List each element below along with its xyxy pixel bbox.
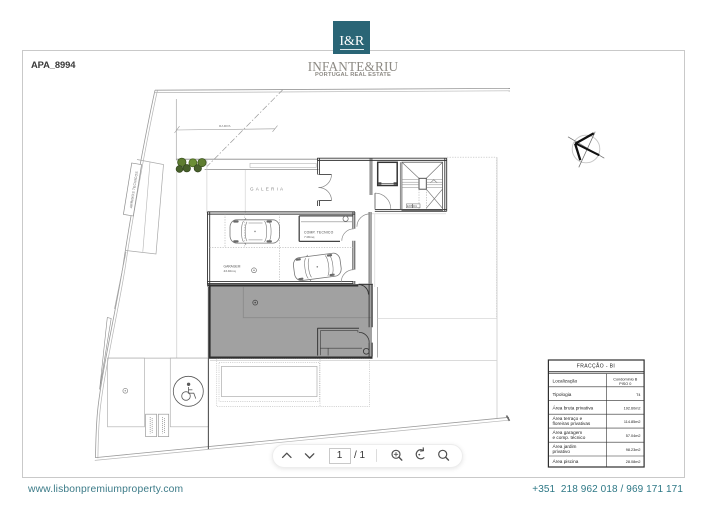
svg-text:Área piscina: Área piscina <box>553 458 579 464</box>
svg-text:RAMPA: RAMPA <box>219 124 232 128</box>
svg-text:114.85m2: 114.85m2 <box>624 420 641 424</box>
svg-text:ENT.001: ENT.001 <box>407 204 418 208</box>
svg-text:Tipologia: Tipologia <box>553 392 572 397</box>
svg-text:98.23m2: 98.23m2 <box>626 448 641 452</box>
svg-text:e comp. técnico: e comp. técnico <box>553 435 586 440</box>
svg-text:GALERIA: GALERIA <box>250 187 285 192</box>
svg-text:192.60m2: 192.60m2 <box>624 406 641 410</box>
svg-text:28.08m2: 28.08m2 <box>626 460 641 464</box>
svg-text:COMP. TECNICO: COMP. TECNICO <box>304 230 334 234</box>
svg-text:Localização: Localização <box>553 378 578 383</box>
svg-text:Área jardim: Área jardim <box>553 443 577 449</box>
svg-text:FRACÇÃO - BI: FRACÇÃO - BI <box>577 363 615 370</box>
svg-text:GARAGEM: GARAGEM <box>224 265 241 269</box>
svg-text:43.40mq: 43.40mq <box>224 269 236 273</box>
svg-text:Área terraço e: Área terraço e <box>553 415 583 421</box>
svg-text:PISO 0: PISO 0 <box>619 382 631 386</box>
svg-text:Área bruta privativa: Área bruta privativa <box>553 405 594 411</box>
svg-text:I&R: I&R <box>339 34 365 49</box>
svg-text:7.06mq: 7.06mq <box>304 235 315 239</box>
svg-text:privativo: privativo <box>553 449 571 454</box>
svg-text:57.04m2: 57.04m2 <box>626 434 641 438</box>
svg-text:T4: T4 <box>636 393 640 397</box>
svg-text:Condomínio B: Condomínio B <box>613 377 638 381</box>
svg-text:floreiras privativas: floreiras privativas <box>553 421 591 426</box>
svg-text:Área garagem: Área garagem <box>553 429 583 435</box>
